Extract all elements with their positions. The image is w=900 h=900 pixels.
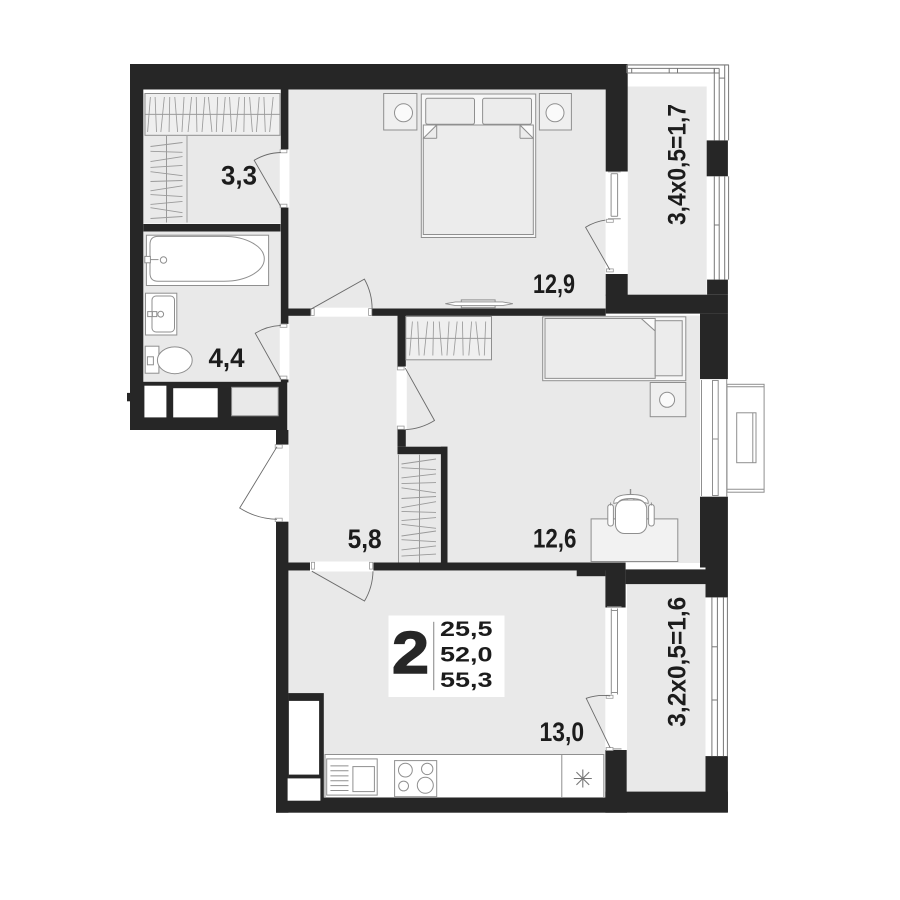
svg-text:3,4х0,5=1,7: 3,4х0,5=1,7 — [663, 104, 691, 225]
svg-text:3,3: 3,3 — [221, 161, 257, 191]
svg-text:2: 2 — [392, 621, 429, 687]
svg-text:25,5: 25,5 — [440, 618, 493, 641]
svg-text:12,9: 12,9 — [533, 269, 575, 299]
svg-text:55,3: 55,3 — [440, 669, 493, 692]
svg-text:12,6: 12,6 — [533, 524, 577, 554]
svg-text:3,2х0,5=1,6: 3,2х0,5=1,6 — [663, 597, 691, 727]
svg-text:52,0: 52,0 — [440, 643, 493, 666]
svg-text:4,4: 4,4 — [209, 343, 245, 373]
svg-text:13,0: 13,0 — [540, 717, 585, 747]
svg-text:5,8: 5,8 — [348, 524, 382, 554]
